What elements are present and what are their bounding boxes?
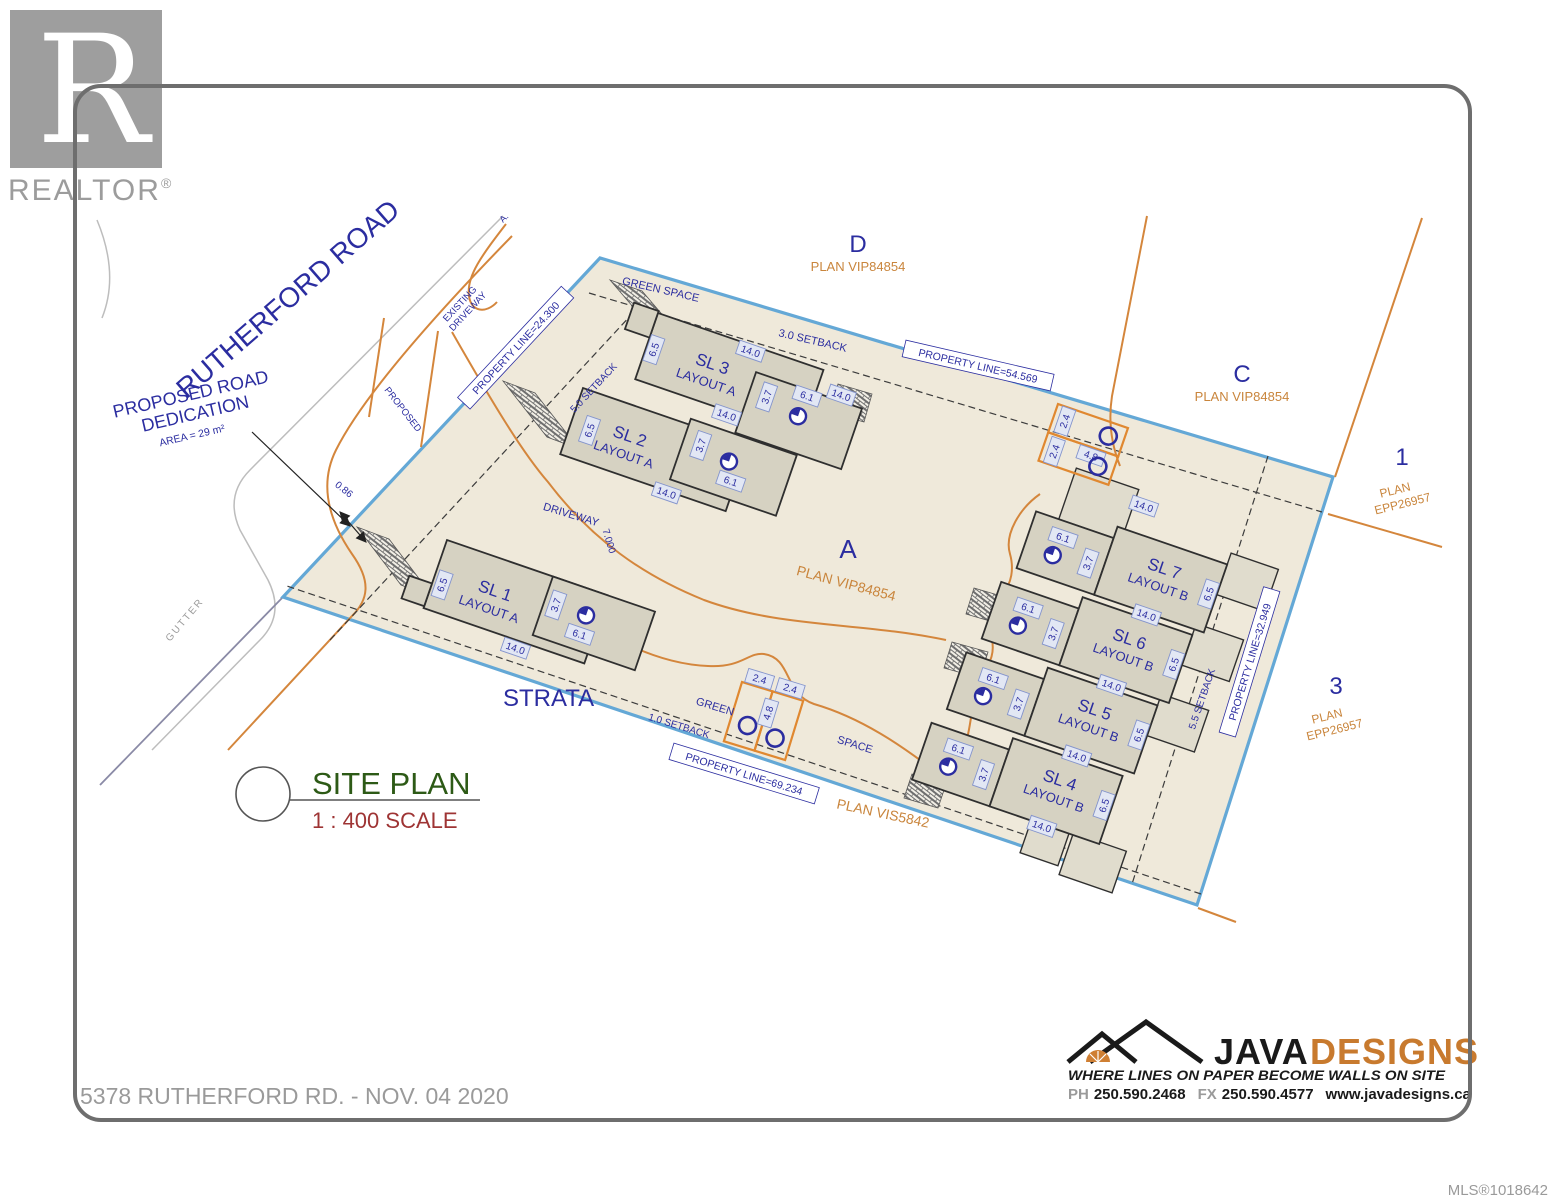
sheet-title: SITE PLAN bbox=[312, 766, 471, 801]
gutter-label: GUTTER bbox=[164, 596, 207, 644]
lot1-name: 1 bbox=[1395, 444, 1408, 471]
lot-line-east-2 bbox=[1328, 514, 1442, 547]
rutherford-road-label: RUTHERFORD ROAD bbox=[170, 194, 405, 404]
proposed-road-edge-1 bbox=[369, 318, 384, 417]
realtor-logo-r: R bbox=[36, 4, 153, 178]
site-plan-drawing: R REALTOR® SL 3 LAYOUT A bbox=[0, 0, 1553, 1200]
java-designs-logo: JAVA DESIGNS WHERE LINES ON PAPER BECOME… bbox=[1068, 1022, 1479, 1103]
sheet-scale: 1 : 400 SCALE bbox=[312, 808, 458, 833]
existing-driveway-label: EXISTING DRIVEWAY bbox=[439, 282, 489, 334]
lot3-name: 3 bbox=[1329, 673, 1342, 700]
realtor-wordmark: REALTOR® bbox=[8, 174, 173, 207]
lot-line-south bbox=[1198, 908, 1236, 922]
title-bubble bbox=[236, 767, 290, 821]
partial-road-label: A. bbox=[497, 211, 510, 224]
proposed-road-edge-2 bbox=[421, 331, 438, 447]
dedication-leader-line bbox=[252, 432, 350, 526]
title-block: SITE PLAN 1 : 400 SCALE bbox=[236, 766, 480, 833]
realtor-logo: R REALTOR® bbox=[8, 4, 173, 207]
java-wordmark: JAVA bbox=[1214, 1031, 1309, 1072]
mls-number: MLS®1018642 bbox=[1448, 1182, 1548, 1199]
lot1-plan: PLAN EPP26957 bbox=[1369, 475, 1432, 517]
java-contact: PH250.590.2468FX250.590.4577www.javadesi… bbox=[1068, 1086, 1472, 1103]
road-edge-arc bbox=[97, 220, 110, 318]
address-date-label: 5378 RUTHERFORD RD. - NOV. 04 2020 bbox=[80, 1083, 509, 1109]
site-plan-sheet: R REALTOR® SL 3 LAYOUT A bbox=[0, 0, 1553, 1200]
parcel-c-name: C bbox=[1233, 361, 1250, 388]
designs-wordmark: DESIGNS bbox=[1310, 1031, 1479, 1072]
lot-line-east-1 bbox=[1335, 218, 1422, 477]
parcel-a-name: A bbox=[839, 534, 857, 564]
parcel-d-plan: PLAN VIP84854 bbox=[811, 259, 906, 274]
java-tagline: WHERE LINES ON PAPER BECOME WALLS ON SIT… bbox=[1068, 1068, 1446, 1083]
property-line-extension bbox=[100, 597, 283, 785]
lot3-plan: PLAN EPP26957 bbox=[1301, 701, 1364, 743]
dedication-width-dim: 0.86 bbox=[332, 480, 354, 501]
parcel-d-name: D bbox=[849, 231, 866, 258]
proposed-label: PROPOSED bbox=[382, 385, 424, 434]
strata-label: STRATA bbox=[503, 685, 594, 712]
parcel-c-plan: PLAN VIP84854 bbox=[1195, 389, 1290, 404]
